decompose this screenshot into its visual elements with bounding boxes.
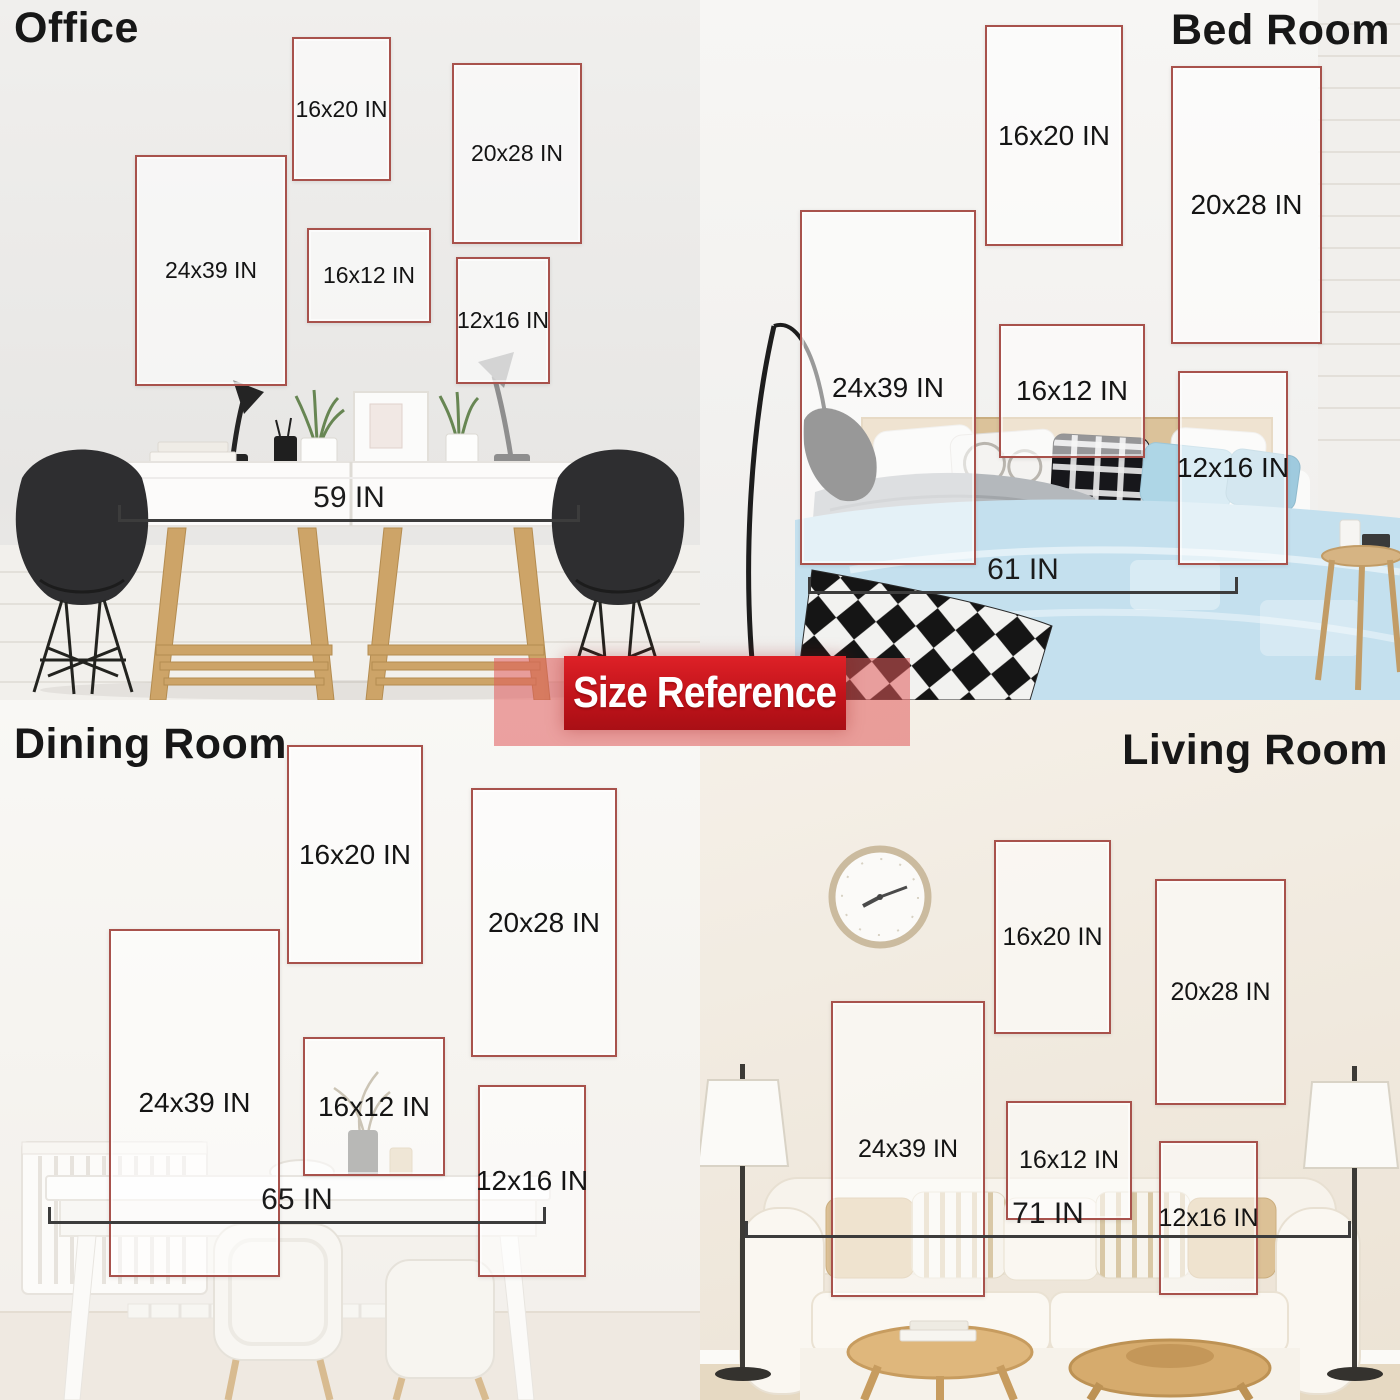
size-frame-24x39: 24x39 IN [800, 210, 976, 565]
room-title: Dining Room [14, 720, 287, 769]
size-frame-label: 20x28 IN [488, 907, 600, 939]
size-frame-20x28: 20x28 IN [1155, 879, 1286, 1105]
room-bedroom: Bed Room 16x20 IN 20x28 IN 24x39 IN 16x1… [700, 0, 1400, 700]
size-frame-16x12: 16x12 IN [999, 324, 1145, 458]
measurement-line [48, 1221, 546, 1224]
size-frame-label: 12x16 IN [1177, 452, 1289, 484]
width-measurement: 61 IN [808, 556, 1238, 594]
size-frame-label: 16x20 IN [1002, 923, 1102, 952]
size-frame-label: 16x20 IN [295, 96, 387, 123]
width-measurement-label: 59 IN [118, 481, 580, 515]
size-frame-12x16: 12x16 IN [456, 257, 550, 384]
width-measurement-label: 61 IN [808, 553, 1238, 587]
size-frame-16x20: 16x20 IN [985, 25, 1123, 246]
size-frame-label: 16x12 IN [323, 262, 415, 289]
size-frame-24x39: 24x39 IN [109, 929, 280, 1277]
size-frame-20x28: 20x28 IN [1171, 66, 1322, 344]
width-measurement: 71 IN [745, 1200, 1351, 1238]
size-frame-label: 16x12 IN [1016, 375, 1128, 407]
room-title: Office [14, 4, 139, 53]
size-frame-label: 24x39 IN [858, 1135, 958, 1164]
room-title: Living Room [1122, 726, 1388, 775]
size-frame-16x12: 16x12 IN [307, 228, 431, 323]
size-reference-banner: Size Reference [564, 656, 846, 730]
size-frame-label: 16x20 IN [998, 120, 1110, 152]
size-frame-label: 24x39 IN [832, 372, 944, 404]
width-measurement: 65 IN [48, 1186, 546, 1224]
measurement-line [118, 519, 580, 522]
living-scene [700, 700, 1400, 1400]
width-measurement-label: 71 IN [745, 1197, 1351, 1231]
size-frame-label: 20x28 IN [1170, 978, 1270, 1007]
size-frame-label: 16x12 IN [318, 1091, 430, 1123]
size-frame-12x16: 12x16 IN [1178, 371, 1288, 565]
size-frame-label: 24x39 IN [165, 257, 257, 284]
size-frame-16x20: 16x20 IN [994, 840, 1111, 1034]
size-frame-label: 24x39 IN [138, 1087, 250, 1119]
size-frame-24x39: 24x39 IN [135, 155, 287, 386]
size-frame-label: 20x28 IN [1190, 189, 1302, 221]
size-frame-24x39: 24x39 IN [831, 1001, 985, 1297]
size-frame-16x12: 16x12 IN [303, 1037, 445, 1176]
width-measurement: 59 IN [118, 484, 580, 522]
size-frame-label: 16x12 IN [1019, 1146, 1119, 1175]
office-plant-left [296, 390, 344, 440]
room-dining: Dining Room 16x20 IN 20x28 IN 24x39 IN 1… [0, 700, 700, 1400]
measurement-line [745, 1235, 1351, 1238]
size-frame-16x20: 16x20 IN [287, 745, 423, 964]
banner-title: Size Reference [573, 668, 836, 718]
size-frame-label: 20x28 IN [471, 140, 563, 167]
wall-clock [832, 849, 928, 945]
room-office: Office 16x20 IN 20x28 IN 24x39 IN 16x12 … [0, 0, 700, 700]
size-frame-label: 12x16 IN [457, 307, 549, 334]
measurement-line [808, 591, 1238, 594]
office-plant-right [440, 392, 478, 436]
room-title: Bed Room [1171, 6, 1390, 55]
dining-chair-right [386, 1260, 494, 1400]
size-frame-12x16: 12x16 IN [478, 1085, 586, 1277]
size-reference-infographic: Office 16x20 IN 20x28 IN 24x39 IN 16x12 … [0, 0, 1400, 1400]
size-frame-16x20: 16x20 IN [292, 37, 391, 181]
size-frame-20x28: 20x28 IN [471, 788, 617, 1057]
room-living: Living Room 16x20 IN 20x28 IN 24x39 IN 1… [700, 700, 1400, 1400]
size-frame-label: 16x20 IN [299, 839, 411, 871]
size-frame-20x28: 20x28 IN [452, 63, 582, 244]
width-measurement-label: 65 IN [48, 1183, 546, 1217]
